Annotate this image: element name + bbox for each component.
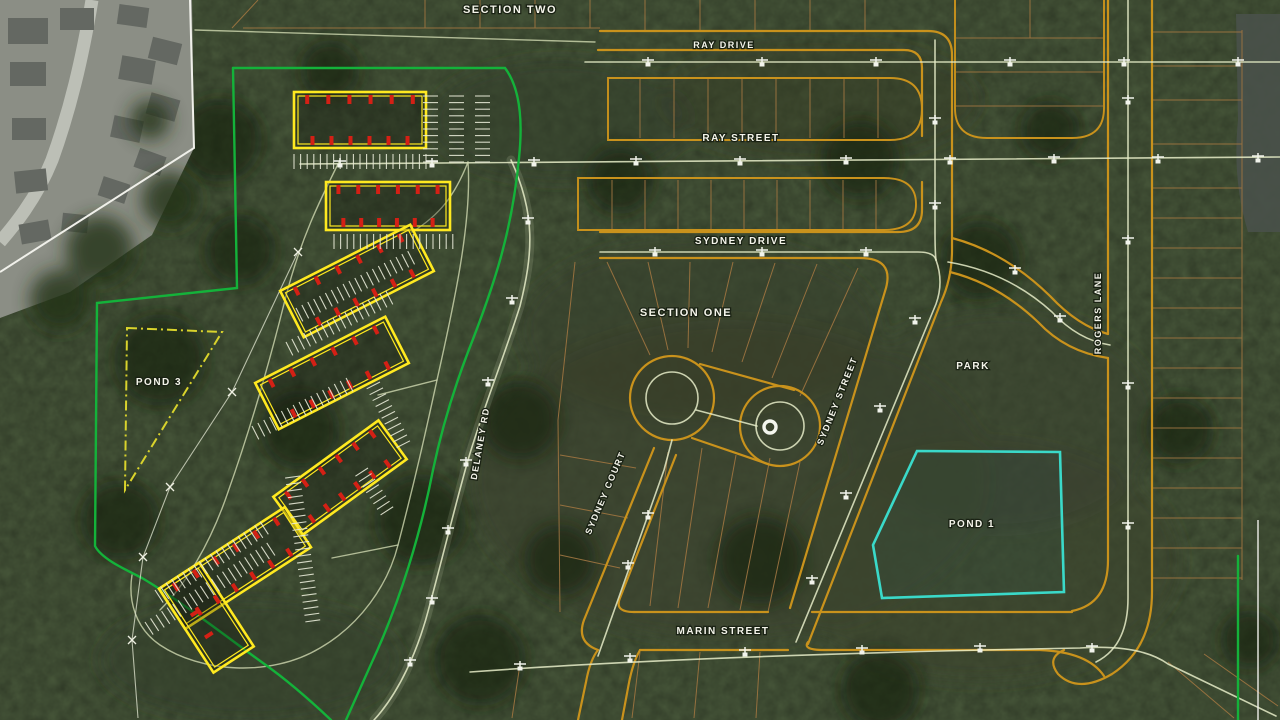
unit-marker <box>377 218 381 227</box>
unit-marker <box>387 136 391 145</box>
unit-marker <box>396 185 400 194</box>
unit-marker <box>348 136 352 145</box>
unit-marker <box>356 185 360 194</box>
label-rogers-lane: ROGERS LANE <box>1093 272 1103 355</box>
unit-marker <box>347 95 351 104</box>
unit-marker <box>310 136 314 145</box>
unit-marker <box>406 136 410 145</box>
label-sydney-drive: SYDNEY DRIVE <box>695 236 787 247</box>
label-section-one: SECTION ONE <box>640 307 732 319</box>
label-marin-street: MARIN STREET <box>677 626 770 637</box>
label-pond-1: POND 1 <box>949 519 995 530</box>
label-ray-street: RAY STREET <box>702 133 779 144</box>
apartment-building <box>326 182 450 230</box>
site-plan-map: SECTION TWO RAY DRIVE RAY STREET SYDNEY … <box>0 0 1280 720</box>
unit-marker <box>305 95 309 104</box>
unit-marker <box>329 136 333 145</box>
unit-marker <box>369 95 373 104</box>
apartment-building <box>294 92 426 148</box>
existing-pond-water <box>1236 14 1280 232</box>
label-section-two: SECTION TWO <box>463 4 557 16</box>
unit-marker <box>341 218 345 227</box>
unit-marker <box>326 95 330 104</box>
unit-marker <box>376 185 380 194</box>
unit-marker <box>413 218 417 227</box>
unit-marker <box>359 218 363 227</box>
label-park: PARK <box>956 361 990 372</box>
unit-marker <box>436 185 440 194</box>
label-ray-drive: RAY DRIVE <box>693 40 755 50</box>
unit-marker <box>368 136 372 145</box>
unit-marker <box>395 218 399 227</box>
parking-stall-row <box>294 154 426 169</box>
label-pond-3: POND 3 <box>136 377 182 388</box>
unit-marker <box>431 218 435 227</box>
unit-marker <box>411 95 415 104</box>
unit-marker <box>390 95 394 104</box>
unit-marker <box>336 185 340 194</box>
unit-marker <box>416 185 420 194</box>
